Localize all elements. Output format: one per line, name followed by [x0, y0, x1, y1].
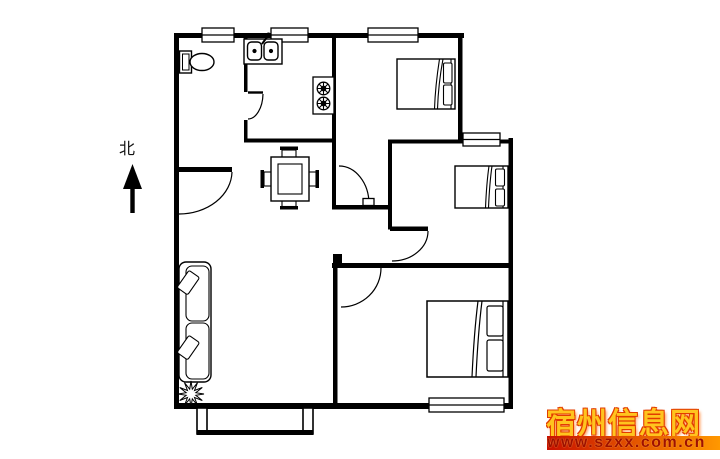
window-bedroom3: [429, 398, 504, 412]
window-bedroom2: [463, 133, 500, 146]
pillow: [496, 169, 505, 186]
bedroom2-door: [390, 227, 428, 262]
north-label: 北: [110, 135, 144, 159]
gas-stove: [313, 77, 334, 114]
table-inner: [278, 164, 302, 194]
wall-bedroom2-left: [388, 140, 392, 230]
floor-plan-canvas: 北 宿州信息网 www.szxx.com.cn: [0, 0, 720, 459]
porch-bottom-wall: [197, 430, 313, 435]
bed-bedroom2: [455, 166, 508, 208]
entry-door-arc: [179, 172, 232, 214]
toilet: [180, 51, 215, 73]
wall-bedroom1-right: [458, 33, 463, 142]
entry-porch: [197, 408, 313, 435]
stove-burner: [317, 82, 330, 95]
bedroom3-door-arc: [341, 268, 381, 307]
wall-kitchen-bottom: [244, 139, 336, 143]
wall-bath-right-lower: [244, 120, 248, 142]
wall-divider-hinge-stub: [333, 254, 342, 264]
bed-bedroom3: [427, 301, 508, 377]
wall-right-outer: [509, 138, 514, 408]
pillow: [444, 85, 453, 105]
stove-burner: [317, 97, 330, 110]
watermark-url-bar: www.szxx.com.cn: [547, 436, 720, 450]
window-bedroom1: [368, 28, 418, 42]
bedroom1-door: [339, 166, 374, 206]
north-arrow-icon: [123, 164, 142, 213]
watermark-url: www.szxx.com.cn: [547, 436, 720, 450]
pillow: [496, 189, 505, 206]
pillow: [487, 306, 503, 336]
dining-table: [261, 147, 320, 210]
bed-bedroom1: [397, 59, 455, 109]
pillow: [444, 63, 453, 83]
wall-hall-bottom: [332, 205, 392, 210]
wall-kitchen-right: [332, 36, 336, 208]
pillow: [487, 340, 503, 371]
wall-living-divider: [333, 263, 338, 408]
sofa: [177, 262, 211, 382]
floor-plan-drawing: [0, 0, 720, 459]
entry-door-leaf: [177, 167, 232, 172]
bathroom-kitchen-door: [248, 93, 263, 120]
wall-bedrooms-middle: [332, 263, 513, 268]
window-bathroom: [202, 28, 234, 42]
watermark-site-name: 宿州信息网: [546, 399, 720, 437]
